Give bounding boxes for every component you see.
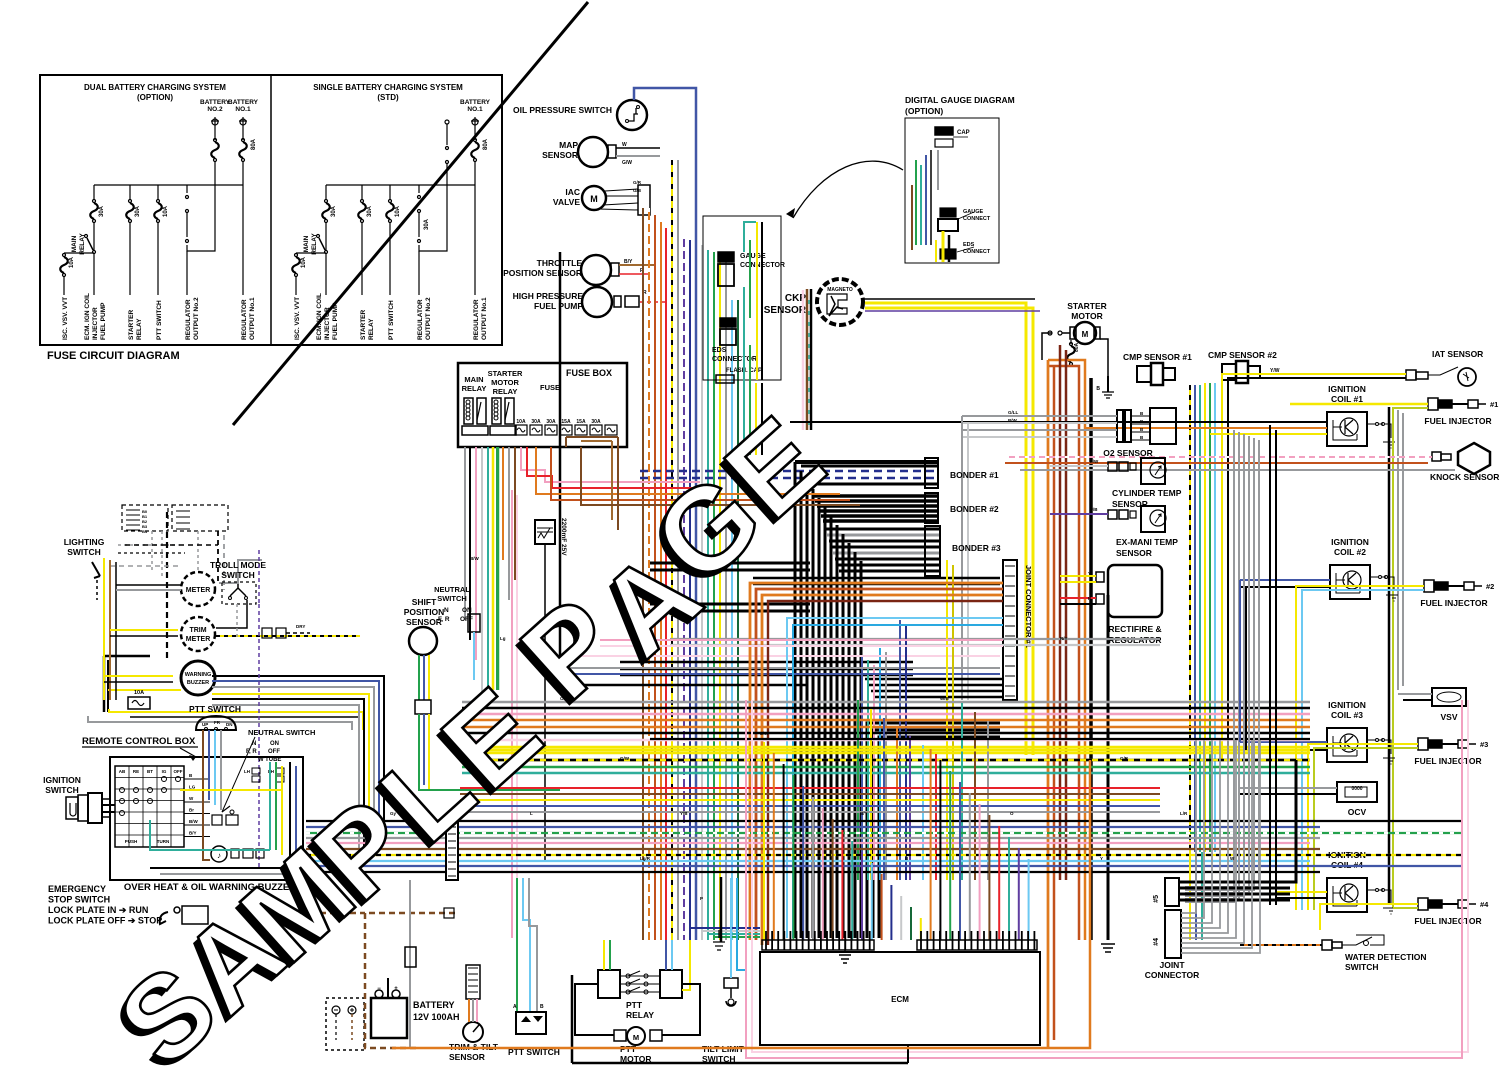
svg-text:10A: 10A	[134, 690, 144, 696]
svg-text:30A: 30A	[331, 205, 337, 217]
svg-text:MAP: MAP	[559, 140, 578, 150]
svg-text:B: B	[1096, 386, 1100, 392]
svg-text:G/B: G/B	[633, 188, 642, 193]
svg-text:OUTPUT No.1: OUTPUT No.1	[481, 297, 488, 340]
svg-text:2200mF 25V: 2200mF 25V	[560, 518, 567, 556]
svg-text:FUSE: FUSE	[540, 383, 560, 392]
svg-text:COIL #3: COIL #3	[1331, 710, 1363, 720]
svg-text:A: A	[513, 1004, 517, 1010]
svg-text:BONDER #3: BONDER #3	[952, 543, 1001, 553]
svg-text:PTT SWITCH: PTT SWITCH	[156, 300, 163, 340]
svg-text:L/W: L/W	[1090, 459, 1099, 464]
svg-text:M: M	[1082, 330, 1089, 339]
svg-text:FUEL INJECTOR: FUEL INJECTOR	[1420, 598, 1487, 608]
svg-text:FUSE CIRCUIT DIAGRAM: FUSE CIRCUIT DIAGRAM	[47, 350, 180, 362]
svg-text:NO.2: NO.2	[207, 106, 223, 113]
svg-text:IAC: IAC	[565, 187, 580, 197]
svg-text:BONDER #2: BONDER #2	[950, 504, 999, 514]
svg-text:SWITCH: SWITCH	[221, 570, 255, 580]
svg-text:FUEL INJECTOR: FUEL INJECTOR	[1414, 756, 1481, 766]
svg-text:SWITCH: SWITCH	[1345, 962, 1379, 972]
svg-text:IGNITION: IGNITION	[1328, 384, 1366, 394]
svg-text:G/R: G/R	[633, 180, 642, 185]
svg-text:DUAL BATTERY CHARGING SYSTEM: DUAL BATTERY CHARGING SYSTEM	[84, 83, 226, 92]
svg-text:MOTOR: MOTOR	[491, 378, 519, 387]
svg-text:#1: #1	[1490, 400, 1498, 409]
svg-text:#3: #3	[1480, 740, 1488, 749]
svg-text:ECM. IGN COIL: ECM. IGN COIL	[84, 293, 91, 340]
svg-text:ECM: ECM	[891, 995, 909, 1004]
svg-text:30A: 30A	[546, 419, 556, 425]
svg-text:FUEL INJECTOR: FUEL INJECTOR	[1414, 916, 1481, 926]
svg-text:B/W: B/W	[470, 556, 480, 561]
svg-text:B/W: B/W	[189, 819, 199, 824]
svg-text:80A: 80A	[1074, 342, 1080, 352]
svg-text:80A: 80A	[483, 138, 489, 150]
svg-text:0000: 0000	[1351, 786, 1362, 792]
svg-text:O2 SENSOR: O2 SENSOR	[1103, 448, 1153, 458]
svg-text:B/Y: B/Y	[860, 811, 868, 816]
svg-text:10A: 10A	[301, 256, 307, 268]
svg-text:ON: ON	[462, 607, 472, 614]
svg-text:M: M	[633, 1033, 639, 1042]
svg-text:80A: 80A	[251, 138, 257, 150]
svg-text:DRY: DRY	[296, 624, 305, 629]
svg-text:OUTPUT No.2: OUTPUT No.2	[425, 297, 432, 340]
svg-text:CONNECTOR: CONNECTOR	[1145, 970, 1200, 980]
svg-text:COIL #1: COIL #1	[1331, 394, 1363, 404]
svg-text:SENSOR: SENSOR	[764, 305, 807, 316]
svg-text:EX-MANI TEMP: EX-MANI TEMP	[1116, 537, 1178, 547]
svg-text:CMP SENSOR #2: CMP SENSOR #2	[1208, 350, 1277, 360]
svg-text:G/R: G/R	[1120, 756, 1129, 761]
svg-text:MAGNETO: MAGNETO	[827, 287, 853, 293]
svg-text:RELAY: RELAY	[493, 387, 518, 396]
svg-text:G/LL: G/LL	[1008, 410, 1018, 415]
svg-text:(STD): (STD)	[377, 93, 399, 102]
svg-text:STARTER: STARTER	[360, 309, 367, 340]
svg-text:L: L	[530, 811, 533, 816]
svg-text:CONNECT: CONNECT	[963, 216, 991, 222]
svg-text:P: P	[700, 896, 703, 901]
svg-text:METER: METER	[186, 587, 211, 594]
svg-text:OFF: OFF	[174, 769, 183, 774]
svg-text:WARNING: WARNING	[185, 672, 212, 678]
svg-text:30A: 30A	[367, 205, 373, 217]
svg-text:RELAY: RELAY	[79, 233, 86, 255]
svg-text:METER: METER	[186, 636, 211, 643]
svg-text:EDS: EDS	[712, 347, 727, 354]
svg-text:G/W: G/W	[622, 160, 632, 166]
svg-text:OUTPUT No.2: OUTPUT No.2	[193, 297, 200, 340]
svg-text:BATTERY: BATTERY	[200, 99, 231, 106]
svg-text:PTT: PTT	[626, 1000, 643, 1010]
svg-text:FUEL PUMP: FUEL PUMP	[100, 302, 107, 340]
svg-text:RELAY: RELAY	[136, 318, 143, 340]
svg-text:DIGITAL GAUGE DIAGRAM: DIGITAL GAUGE DIAGRAM	[905, 95, 1015, 105]
svg-text:30A: 30A	[135, 205, 141, 217]
svg-text:KNOCK SENSOR: KNOCK SENSOR	[1430, 472, 1499, 482]
svg-text:LG: LG	[189, 785, 196, 790]
svg-text:REMOTE CONTROL BOX: REMOTE CONTROL BOX	[82, 736, 196, 747]
svg-text:30A: 30A	[531, 419, 541, 425]
svg-text:ON: ON	[270, 741, 279, 747]
svg-text:MAIN: MAIN	[303, 235, 310, 252]
svg-text:F, R: F, R	[438, 616, 450, 623]
svg-text:IGNITION: IGNITION	[1328, 700, 1366, 710]
svg-text:Lg/R: Lg/R	[640, 856, 651, 861]
svg-text:12V 100AH: 12V 100AH	[413, 1012, 460, 1022]
svg-text:BONDER #1: BONDER #1	[950, 470, 999, 480]
svg-text:JOINT CONNECTOR #1: JOINT CONNECTOR #1	[1024, 565, 1033, 648]
svg-text:−: −	[377, 986, 381, 992]
svg-text:OFF: OFF	[268, 749, 280, 755]
svg-text:OIL PRESSURE SWITCH: OIL PRESSURE SWITCH	[513, 105, 612, 115]
svg-text:STARTER: STARTER	[1067, 301, 1107, 311]
svg-text:EMERGENCY: EMERGENCY	[48, 884, 106, 894]
svg-text:SHIFT: SHIFT	[412, 597, 437, 607]
svg-text:SWITCH: SWITCH	[67, 547, 101, 557]
svg-text:10A: 10A	[395, 205, 401, 217]
svg-text:NEUTRAL SWITCH: NEUTRAL SWITCH	[248, 728, 315, 737]
svg-text:SWITCH: SWITCH	[437, 594, 467, 603]
svg-text:BATTERY: BATTERY	[460, 99, 491, 106]
svg-text:O: O	[1010, 811, 1014, 816]
svg-text:HIGH PRESSURE: HIGH PRESSURE	[513, 291, 584, 301]
svg-text:NEUTRAL: NEUTRAL	[434, 585, 470, 594]
svg-text:Y: Y	[1088, 571, 1091, 576]
svg-text:B/W: B/W	[1008, 418, 1018, 423]
svg-text:STARTER: STARTER	[128, 309, 135, 340]
svg-text:R/Y: R/Y	[1060, 636, 1068, 641]
svg-text:RE: RE	[133, 769, 139, 774]
svg-text:TRIM: TRIM	[189, 627, 206, 634]
svg-text:UP: UP	[202, 722, 208, 727]
svg-text:IG: IG	[162, 769, 167, 774]
svg-text:IGNITION: IGNITION	[43, 775, 81, 785]
svg-text:REGULATOR: REGULATOR	[417, 299, 424, 340]
svg-text:REGULATOR: REGULATOR	[185, 299, 192, 340]
svg-text:♪: ♪	[217, 851, 221, 860]
svg-text:RELAY: RELAY	[462, 384, 487, 393]
svg-text:REGULATOR: REGULATOR	[241, 299, 248, 340]
svg-text:Y/B: Y/B	[680, 811, 688, 816]
svg-text:IAT SENSOR: IAT SENSOR	[1432, 349, 1483, 359]
svg-text:L/W: L/W	[760, 731, 769, 736]
svg-text:SENSOR: SENSOR	[1116, 548, 1152, 558]
svg-text:15A: 15A	[561, 419, 571, 425]
svg-text:CAP: CAP	[957, 130, 970, 136]
svg-text:FUEL PUMP: FUEL PUMP	[534, 301, 583, 311]
svg-text:P/B: P/B	[1090, 507, 1098, 512]
svg-text:SENSOR: SENSOR	[542, 150, 578, 160]
svg-text:STOP SWITCH: STOP SWITCH	[48, 895, 110, 905]
svg-text:#5: #5	[1153, 895, 1160, 903]
svg-text:LOCK PLATE OFF ➔ STOP: LOCK PLATE OFF ➔ STOP	[48, 916, 162, 926]
svg-text:(OPTION): (OPTION)	[137, 93, 173, 102]
svg-text:PUSH: PUSH	[125, 839, 138, 844]
svg-text:G/W: G/W	[620, 756, 630, 761]
svg-text:PTT SWITCH: PTT SWITCH	[388, 300, 395, 340]
svg-text:ISC. VSV. VVT: ISC. VSV. VVT	[294, 297, 301, 340]
svg-text:INJECTOR: INJECTOR	[92, 307, 99, 340]
svg-text:VSV: VSV	[1440, 712, 1457, 722]
svg-text:OFF: OFF	[460, 616, 473, 623]
svg-text:AB: AB	[119, 769, 126, 774]
svg-text:VALVE: VALVE	[553, 197, 580, 207]
svg-text:10A: 10A	[516, 419, 526, 425]
svg-text:TROLL MODE: TROLL MODE	[210, 560, 266, 570]
svg-text:BUZZER: BUZZER	[187, 680, 209, 686]
svg-text:#4: #4	[1153, 938, 1160, 946]
svg-text:Y: Y	[1100, 856, 1103, 861]
svg-text:SENSOR: SENSOR	[449, 1052, 485, 1062]
svg-text:SENSOR: SENSOR	[406, 617, 442, 627]
svg-text:LOCK PLATE IN ➔ RUN: LOCK PLATE IN ➔ RUN	[48, 905, 148, 915]
svg-text:FUEL INJECTOR: FUEL INJECTOR	[1424, 416, 1491, 426]
svg-text:CMP SENSOR #1: CMP SENSOR #1	[1123, 352, 1192, 362]
svg-text:POSITION SENSOR: POSITION SENSOR	[503, 268, 582, 278]
svg-text:B: B	[540, 1004, 544, 1010]
svg-text:Y/W: Y/W	[1270, 368, 1280, 374]
svg-text:SINGLE BATTERY CHARGING SYSTEM: SINGLE BATTERY CHARGING SYSTEM	[313, 83, 463, 92]
svg-text:FR: FR	[214, 720, 221, 725]
svg-text:RELAY: RELAY	[311, 233, 318, 255]
svg-text:ISC. VSV. VVT: ISC. VSV. VVT	[62, 297, 69, 340]
svg-text:FUSE BOX: FUSE BOX	[566, 368, 612, 378]
svg-text:Br: Br	[189, 808, 194, 813]
svg-text:MAIN: MAIN	[464, 375, 483, 384]
svg-text:N: N	[444, 607, 449, 614]
svg-text:IGNITION: IGNITION	[1331, 537, 1369, 547]
svg-text:W/B: W/B	[940, 696, 949, 701]
svg-text:15A: 15A	[576, 419, 586, 425]
svg-text:OCV: OCV	[1348, 807, 1367, 817]
svg-text:RELAY: RELAY	[626, 1010, 654, 1020]
svg-text:BT: BT	[147, 769, 153, 774]
svg-text:(OPTION): (OPTION)	[905, 106, 943, 116]
svg-text:LH: LH	[244, 769, 250, 774]
svg-text:SENSOR: SENSOR	[1112, 499, 1148, 509]
svg-text:BATTERY: BATTERY	[228, 99, 259, 106]
svg-text:10A: 10A	[69, 256, 75, 268]
svg-text:PTT SWITCH: PTT SWITCH	[189, 704, 241, 714]
svg-text:STARTER: STARTER	[488, 369, 523, 378]
svg-text:NO.1: NO.1	[467, 106, 483, 113]
svg-text:B/Y: B/Y	[189, 831, 197, 836]
svg-text:REGULATOR: REGULATOR	[473, 299, 480, 340]
svg-text:NO.1: NO.1	[235, 106, 251, 113]
svg-text:MAIN: MAIN	[71, 235, 78, 252]
svg-text:CYLINDER TEMP: CYLINDER TEMP	[1112, 488, 1182, 498]
svg-text:#4: #4	[1480, 900, 1489, 909]
svg-text:WATER DETECTION: WATER DETECTION	[1345, 952, 1427, 962]
svg-text:30A: 30A	[424, 218, 430, 230]
svg-text:OUTPUT No.1: OUTPUT No.1	[249, 297, 256, 340]
svg-text:30A: 30A	[99, 205, 105, 217]
svg-text:B4: B4	[142, 529, 148, 534]
svg-text:#2: #2	[1486, 582, 1494, 591]
svg-text:DN: DN	[226, 722, 233, 727]
svg-text:LIGHTING: LIGHTING	[64, 537, 105, 547]
svg-text:L/R: L/R	[1180, 811, 1188, 816]
svg-text:B/Y: B/Y	[624, 259, 633, 265]
svg-text:SWITCH: SWITCH	[45, 785, 79, 795]
svg-text:W: W	[622, 142, 627, 148]
svg-text:ECM. IGN COIL: ECM. IGN COIL	[316, 293, 323, 340]
svg-text:JOINT: JOINT	[1159, 960, 1185, 970]
svg-text:TURN: TURN	[157, 839, 170, 844]
svg-text:RELAY: RELAY	[368, 318, 375, 340]
svg-text:30A: 30A	[591, 419, 601, 425]
svg-text:10A: 10A	[163, 205, 169, 217]
svg-text:BATTERY: BATTERY	[413, 1000, 455, 1010]
svg-text:CONNECT: CONNECT	[963, 249, 991, 255]
svg-text:MOTOR: MOTOR	[1071, 311, 1102, 321]
svg-text:+: +	[394, 986, 398, 992]
svg-text:M: M	[590, 194, 598, 204]
svg-text:RECTIFIRE &: RECTIFIRE &	[1108, 624, 1161, 634]
svg-text:COIL #2: COIL #2	[1334, 547, 1366, 557]
